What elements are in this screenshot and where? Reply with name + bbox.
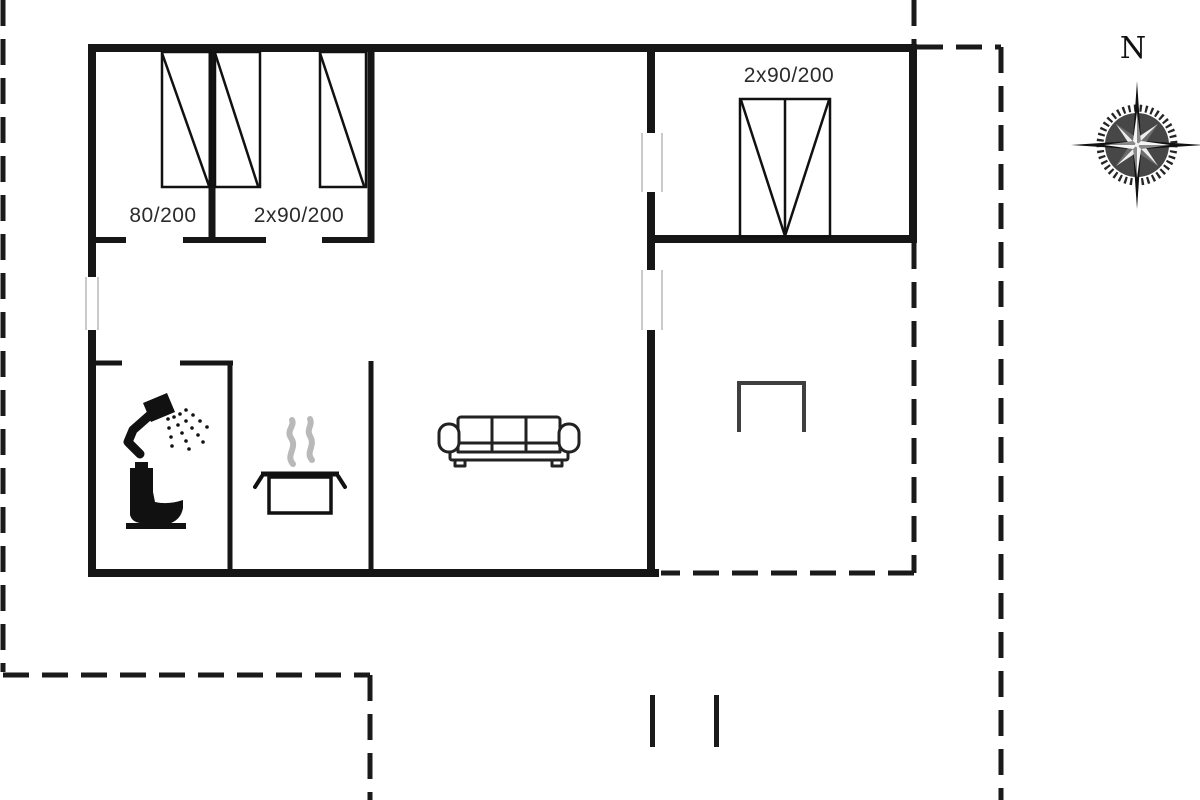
cooking-pot-icon [255,474,345,513]
terrace-boundary-dashed [661,243,914,573]
floor-plan-canvas: 80/200 2x90/200 2x90/200 [0,0,1200,800]
compass-rose-icon [1071,81,1200,209]
window-annex-left-wall [640,133,664,192]
bed-size-label-single: 80/200 [129,204,196,227]
bed-symbol-single [162,52,211,187]
bed-symbol-double-annex [740,99,830,237]
window-left-wall [84,277,100,330]
entrance-markers [650,695,719,747]
table-icon [739,383,804,432]
window-living-right-wall [640,270,664,330]
floor-plan-drawing: 80/200 2x90/200 2x90/200 [0,0,1200,800]
north-label: N [1120,31,1146,66]
shower-spray-dots [166,408,209,451]
bed-symbol-double-left-a [215,52,260,187]
bed-size-label-double: 2x90/200 [254,204,344,227]
toilet-icon [126,462,186,529]
bed-size-label-annex: 2x90/200 [744,64,834,87]
sofa-icon [439,417,579,466]
steam-icon [289,419,312,464]
bed-symbol-double-left-b [320,52,366,187]
shower-icon [128,393,209,454]
